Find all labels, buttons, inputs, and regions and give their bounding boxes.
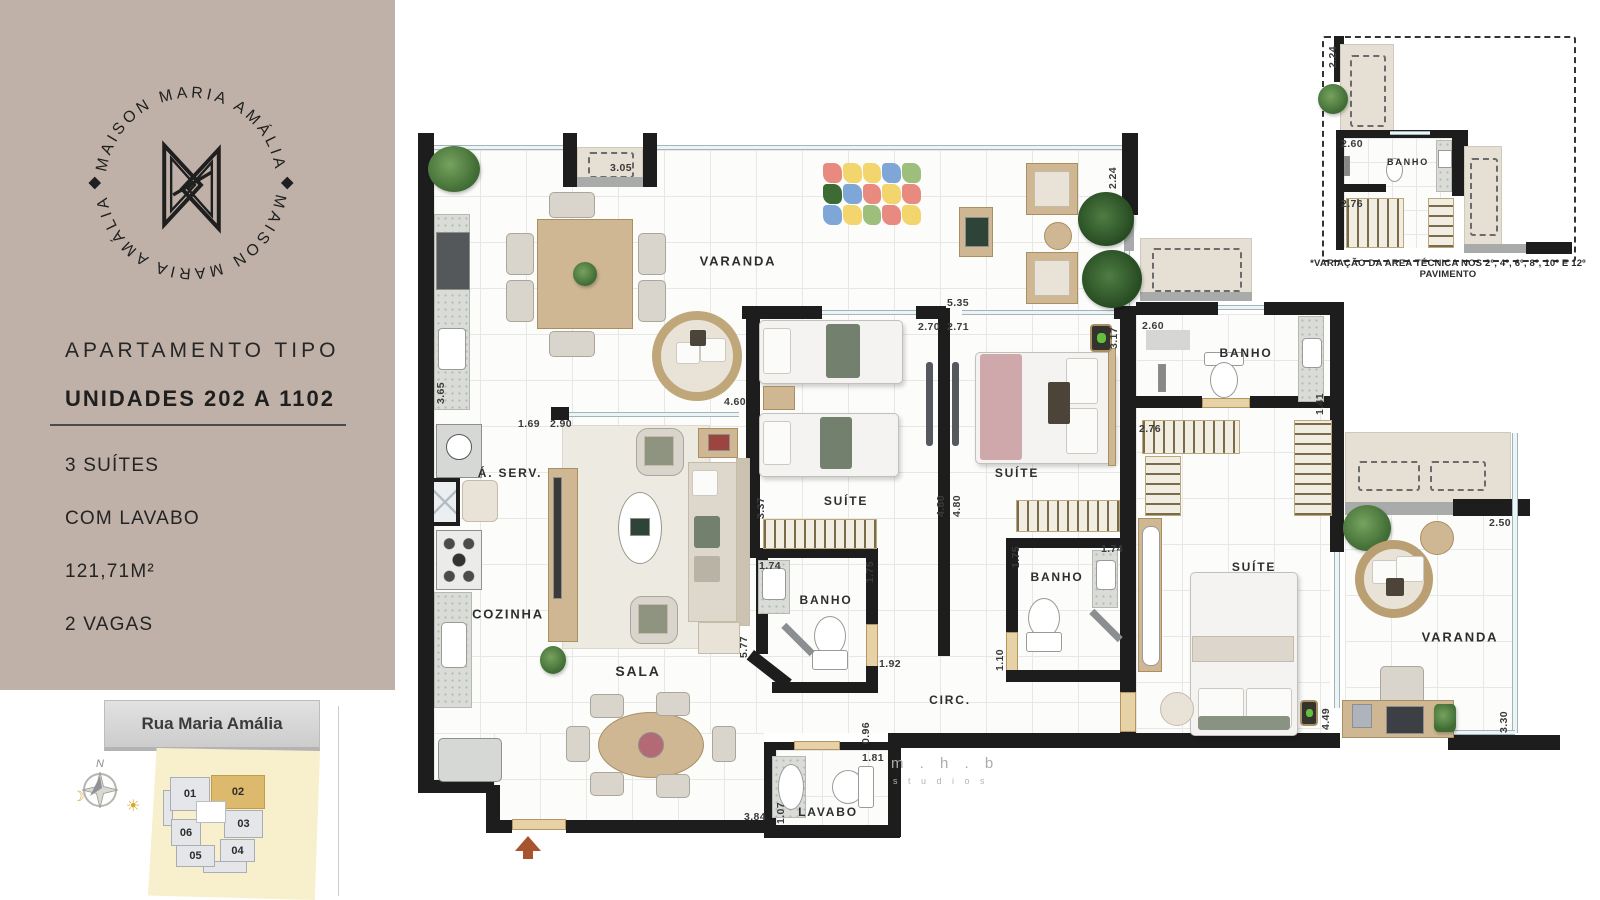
dimension-label: 2.60 (1142, 320, 1164, 332)
centerpiece (638, 732, 664, 758)
span: 06 (180, 827, 192, 839)
sliding-door (952, 362, 959, 446)
dimension-label: 2.24 (1107, 167, 1119, 189)
desk-plant (1434, 704, 1456, 732)
feature-item: 2 VAGAS (65, 614, 200, 636)
palm-plant (1078, 192, 1134, 246)
wall-segment (643, 133, 657, 187)
street-sign: Rua Maria Amália (104, 700, 320, 751)
map-unit-03: 03 (224, 810, 263, 838)
feature-item: 3 SUÍTES (65, 455, 200, 477)
sink-basin (762, 568, 786, 600)
span: 01 (184, 788, 196, 800)
ledge-strip (1464, 244, 1528, 253)
div (823, 163, 842, 183)
room-label: VARANDA (1422, 630, 1499, 645)
cushion (694, 516, 720, 548)
brand-logo: MAISON MARIA AMÁLIA MAISON MARIA AMÁLIA (62, 54, 320, 312)
chair (656, 774, 690, 798)
studio-watermark: s t u d i o s (893, 776, 989, 786)
div (823, 205, 842, 225)
wall-segment (776, 742, 794, 750)
sofa-back (736, 458, 750, 626)
window (962, 310, 1114, 315)
tv (553, 477, 562, 599)
tray (630, 518, 650, 536)
chair (712, 726, 736, 762)
cushion (694, 556, 720, 582)
room-label: SUÍTE (1232, 560, 1276, 574)
side-table (1044, 222, 1072, 250)
text: MAISON MARIA AMÁLIA (93, 193, 288, 282)
dimension-label: 4.49 (1320, 708, 1332, 730)
tv-screen (965, 217, 989, 247)
div (843, 205, 862, 225)
stove (436, 530, 482, 590)
window (1512, 433, 1518, 733)
headboard (1108, 348, 1116, 466)
chair (549, 192, 595, 218)
page-title: APARTAMENTO TIPO (65, 339, 339, 363)
dimension-label: 4.80 (935, 495, 947, 517)
wall-segment (866, 666, 878, 686)
nightstand (763, 386, 795, 410)
wall-segment (566, 820, 766, 833)
window (822, 310, 916, 315)
dimension-label: 4.60 (724, 396, 746, 408)
wall-segment (1136, 396, 1202, 408)
dimension-label: 1.07 (775, 802, 787, 824)
sliding-door (926, 362, 933, 446)
closet-rack (1016, 500, 1120, 532)
armchair-cushion (1034, 260, 1070, 296)
shower-column (1158, 364, 1166, 392)
dimension-label: 2.90 (550, 418, 572, 430)
grill (436, 232, 470, 290)
laundry-tank (462, 480, 498, 522)
dimension-label: 3.37 (755, 497, 767, 519)
pillow (1066, 408, 1098, 454)
div (843, 163, 862, 183)
round-rug (1160, 692, 1194, 726)
shower-column (1344, 156, 1350, 176)
wall-segment (1330, 302, 1344, 552)
closet-rack (1294, 420, 1332, 516)
toilet-bowl (1210, 362, 1238, 398)
wall-segment (1526, 242, 1572, 254)
chair (506, 280, 534, 322)
dimension-label: 1.75 (864, 561, 876, 583)
closet-rack (1145, 456, 1181, 516)
sun-icon: ☀ (126, 796, 140, 816)
div (902, 184, 921, 204)
div (823, 184, 842, 204)
inset-ac-unit (1350, 55, 1386, 127)
brand-panel: MAISON MARIA AMÁLIA MAISON MARIA AMÁLIA … (0, 0, 395, 690)
chair-cushion (644, 436, 674, 466)
dimension-label: 2.76 (1139, 423, 1161, 435)
dashed-outline (1430, 461, 1486, 491)
map-unit-04: 04 (220, 839, 255, 862)
closet-rack (763, 519, 877, 549)
wall-segment (746, 548, 878, 558)
ledge-strip (1140, 292, 1252, 301)
dimension-label: 1.92 (879, 658, 901, 670)
toilet-tank (858, 766, 874, 808)
desk-chair (1380, 666, 1424, 704)
dimension-label: 2.71 (947, 321, 969, 333)
dimension-label: 2.76 (1341, 198, 1363, 210)
plant (540, 646, 566, 674)
sink-basin (1096, 560, 1116, 590)
shaft (430, 478, 460, 526)
feature-item: 121,71M² (65, 561, 200, 583)
logo-diamond-icon (88, 177, 101, 190)
bed-throw (820, 417, 852, 469)
room-label: BANHO (800, 593, 853, 607)
wall-segment (486, 820, 512, 833)
wall-device (1300, 700, 1318, 726)
chair (506, 233, 534, 275)
feature-list: 3 SUÍTESCOM LAVABO121,71M²2 VAGAS (65, 455, 200, 667)
dimension-label: 5.35 (947, 297, 969, 309)
books (708, 434, 730, 451)
span: 03 (237, 818, 249, 830)
div (882, 163, 901, 183)
lavabo-door (794, 741, 840, 750)
window (569, 412, 739, 417)
room-label: SALA (615, 663, 660, 679)
bed-throw (1198, 716, 1290, 730)
inset-ac-unit (1470, 158, 1498, 236)
toilet-tank (812, 650, 848, 670)
map-unit-05: 05 (176, 845, 215, 867)
dimension-label: 5.77 (738, 636, 750, 658)
chair (656, 692, 690, 716)
div (863, 184, 882, 204)
suite3-door (1120, 692, 1136, 732)
centerpiece-plant (573, 262, 597, 286)
pillow (763, 328, 791, 374)
wall-segment (1453, 499, 1530, 516)
room-label: VARANDA (700, 254, 777, 269)
dimension-label: 1.10 (994, 649, 1006, 671)
room-label: CIRC. (929, 693, 971, 707)
plant (1318, 84, 1348, 114)
armchair-cushion (1034, 171, 1070, 207)
dimension-label: 3.84 (744, 811, 766, 823)
dimension-label: 3.17 (1108, 327, 1120, 349)
dimension-label: 4.80 (951, 495, 963, 517)
kitchen-sink (441, 622, 467, 668)
banho1-door (866, 624, 878, 668)
div (863, 205, 882, 225)
kids-play-mat (823, 163, 921, 225)
side-table (1420, 521, 1454, 555)
wall-segment (764, 825, 900, 838)
dimension-label: 1.74 (1101, 543, 1123, 555)
compass-north-label: N (96, 758, 104, 770)
cushion (1386, 578, 1404, 596)
wall-segment (1336, 184, 1386, 192)
closet-rack (1428, 198, 1454, 248)
div (882, 205, 901, 225)
wall-segment (1120, 306, 1136, 738)
dimension-label: 1.81 (862, 752, 884, 764)
wall-segment (563, 133, 577, 187)
div (843, 184, 862, 204)
room-label: BANHO (1220, 346, 1273, 360)
dimension-label: 2.60 (1341, 138, 1363, 150)
span: 05 (189, 850, 201, 862)
chair (638, 233, 666, 275)
div (882, 184, 901, 204)
dimension-label: 2.50 (1489, 517, 1511, 529)
logo-arc-top-text: MAISON MARIA AMÁLIA (93, 84, 288, 173)
room-label: LAVABO (798, 805, 858, 819)
span: 02 (232, 786, 244, 798)
palm-plant (1082, 250, 1142, 308)
wall-segment (1264, 302, 1330, 315)
divider-rule (50, 424, 346, 426)
inset-caption: *VARIAÇÃO DA AREA TÉCNICA NOS 2º, 4º, 6º… (1310, 258, 1586, 280)
banho3-door (1202, 398, 1250, 408)
room-label: SUÍTE (824, 494, 868, 508)
dimension-label: 3.30 (1498, 711, 1510, 733)
wall-segment (866, 548, 878, 626)
entry-arrow-icon (523, 850, 533, 859)
logo-arc-bottom-text: MAISON MARIA AMÁLIA (93, 193, 288, 282)
studio-watermark: m . h . b (891, 755, 999, 772)
div (902, 205, 921, 225)
chair (549, 331, 595, 357)
ledge-strip (577, 177, 643, 187)
bathtub (1142, 526, 1160, 666)
dimension-label: 1.75 (1010, 546, 1022, 568)
dashed-outline (1358, 461, 1420, 491)
span: 04 (231, 845, 243, 857)
dimension-label: 3.65 (435, 382, 447, 404)
logo-monogram-icon (164, 145, 219, 228)
wall-segment (938, 308, 950, 656)
vertical-divider (338, 706, 339, 896)
wall-segment (1448, 735, 1560, 750)
cushion (1048, 382, 1070, 424)
dimension-label: 2.70 (918, 321, 940, 333)
entry-door (512, 819, 566, 830)
chair (566, 726, 590, 762)
laptop (1386, 706, 1424, 734)
street-label: Rua Maria Amália (141, 714, 282, 734)
dimension-label: 2.24 (1327, 46, 1339, 68)
wall-segment (1136, 302, 1218, 315)
room-label: COZINHA (472, 607, 544, 622)
page-subtitle: UNIDADES 202 A 1102 (65, 386, 335, 412)
dimension-label: 1.74 (759, 560, 781, 572)
dimension-label: 3.05 (610, 162, 632, 174)
entry-arrow-icon (515, 836, 541, 851)
div (902, 163, 921, 183)
desk-object (1352, 704, 1372, 728)
page-canvas: MAISON MARIA AMÁLIA MAISON MARIA AMÁLIA … (0, 0, 1600, 900)
bed-blanket (1192, 636, 1294, 662)
varanda-sink (438, 328, 466, 370)
div (863, 163, 882, 183)
plant (428, 146, 480, 192)
dimension-label: 0.96 (860, 722, 872, 744)
map-courtyard (196, 801, 226, 823)
window (657, 145, 1122, 150)
coffee-set-table (698, 622, 740, 654)
room-label: BANHO (1387, 157, 1429, 167)
chair (638, 280, 666, 322)
window (1390, 131, 1430, 135)
room-label: SUÍTE (995, 466, 1039, 480)
map-unit-06: 06 (171, 819, 201, 846)
chair (590, 772, 624, 796)
dimension-label: 1.69 (518, 418, 540, 430)
washer-door (446, 434, 472, 460)
pillow (1066, 358, 1098, 404)
logo-diamond-icon (281, 177, 294, 190)
wall-segment (772, 682, 878, 693)
room-label: BANHO (1031, 570, 1084, 584)
window (1218, 305, 1264, 310)
bath-mat (1146, 330, 1190, 350)
dashed-outline (1152, 248, 1242, 292)
pillow (692, 470, 718, 496)
banho2-door (1006, 632, 1018, 672)
sink-basin (1302, 338, 1322, 368)
bed-throw (826, 324, 860, 378)
chair-cushion (638, 604, 668, 634)
chair (590, 694, 624, 718)
feature-item: COM LAVABO (65, 508, 200, 530)
fridge (438, 738, 502, 782)
varanda-glass-door (1334, 552, 1340, 708)
toilet-tank (1026, 632, 1062, 652)
dimension-label: 1.41 (1314, 393, 1326, 415)
cushion (690, 330, 706, 346)
room-label: Á. SERV. (478, 466, 542, 480)
bed-duvet (980, 354, 1022, 460)
text: MAISON MARIA AMÁLIA (93, 84, 288, 173)
moon-icon: ☽ (72, 788, 85, 805)
wall-segment (1006, 670, 1120, 682)
sink-basin (1438, 150, 1452, 168)
pillow (763, 421, 791, 465)
